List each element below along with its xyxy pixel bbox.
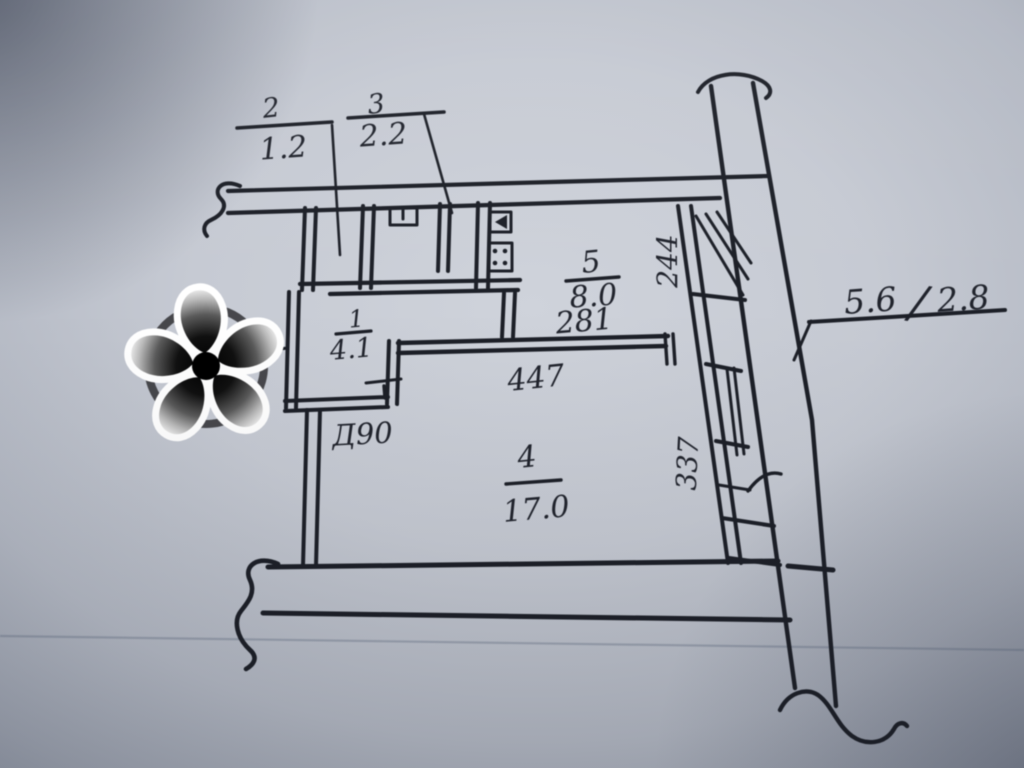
room-4-walls bbox=[303, 410, 320, 566]
room-3-area-label: 2.2 bbox=[357, 116, 408, 154]
kitchen-walls bbox=[398, 293, 675, 364]
stove-icon bbox=[489, 243, 512, 271]
header-dimension-separator: / bbox=[903, 274, 935, 331]
room-2-number-label: 2 bbox=[260, 92, 281, 125]
room-4-fraction-line bbox=[506, 480, 561, 484]
dimension-281-label: 281 bbox=[553, 302, 614, 342]
dimension-337-label: 337 bbox=[670, 436, 706, 491]
room-4-area-label: 17.0 bbox=[501, 489, 571, 530]
room-2-fraction-line bbox=[237, 122, 332, 128]
floor-plan-drawing: 2 1.2 3 2.2 bbox=[0, 0, 1024, 768]
room-1-label: 1 4.1 bbox=[328, 304, 374, 367]
room-4-label: 4 17.0 bbox=[501, 439, 571, 530]
flower-watermark-icon bbox=[120, 282, 292, 447]
top-dimension-labels: 2 1.2 3 2.2 bbox=[237, 88, 452, 255]
room-5-number-label: 5 bbox=[580, 244, 603, 281]
paper-photo-background: 2 1.2 3 2.2 bbox=[0, 0, 1024, 768]
top-room-strip-walls bbox=[300, 203, 520, 294]
vent-box-icon bbox=[390, 208, 417, 225]
right-wall-assembly bbox=[678, 74, 907, 742]
door-d90-label: Д90 bbox=[329, 415, 393, 452]
sink-icon bbox=[490, 212, 511, 232]
dimension-447-label: 447 bbox=[505, 358, 568, 399]
room-3-leader-line bbox=[424, 114, 452, 213]
room-2-area-label: 1.2 bbox=[258, 129, 308, 167]
dimension-244-label: 244 bbox=[651, 234, 684, 288]
paper-rule-line bbox=[0, 636, 1024, 650]
room-1-area-label: 4.1 bbox=[328, 332, 374, 367]
room-4-number-label: 4 bbox=[515, 439, 539, 476]
top-corridor-wall bbox=[204, 176, 768, 236]
bottom-wall bbox=[237, 561, 833, 669]
wall-break-symbol-bottom-right bbox=[780, 691, 907, 742]
room-1-number-label: 1 bbox=[347, 304, 365, 333]
header-dimension: 5.6 / 2.8 bbox=[794, 274, 1005, 360]
